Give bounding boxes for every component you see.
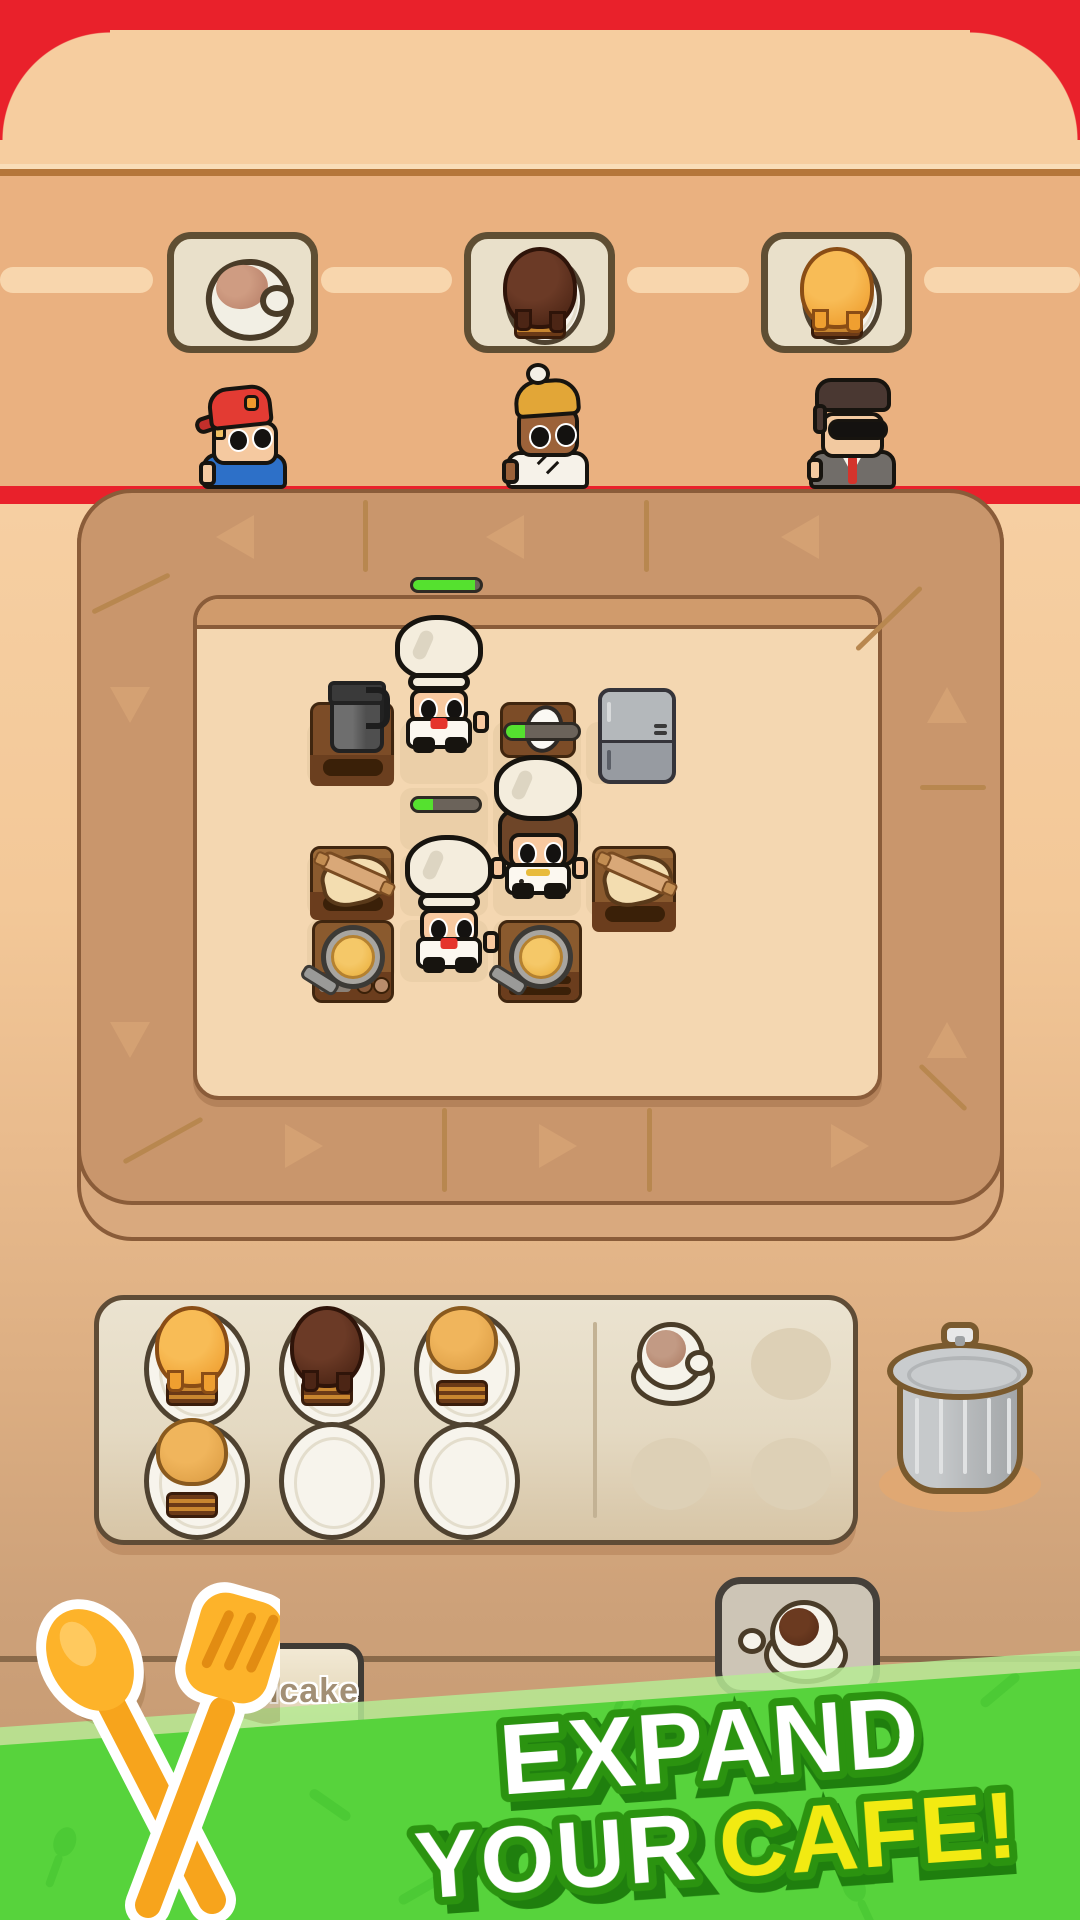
coffee-cup-icon: [198, 253, 294, 337]
expand-arrow-right-icon[interactable]: [539, 1124, 577, 1168]
fridge-handle: [654, 731, 667, 735]
customer-eye: [557, 425, 575, 445]
fridge[interactable]: [598, 688, 676, 784]
status-bar: [0, 0, 1080, 30]
expand-arrow-left-icon[interactable]: [486, 515, 524, 559]
trash-lid: [887, 1342, 1033, 1400]
progress-bar-order-middle: [410, 796, 482, 813]
order-card-coffee: [167, 232, 318, 353]
expand-arrow-left-icon[interactable]: [216, 515, 254, 559]
empty-cup-spot: [751, 1328, 831, 1400]
conveyor-stripe: [924, 267, 1080, 293]
conveyor-stripe: [627, 267, 749, 293]
customer-hand: [502, 459, 519, 484]
expand-arrow-right-icon[interactable]: [831, 1124, 869, 1168]
expand-arrow-down-icon[interactable]: [110, 687, 150, 723]
kitchen-back-wall: [197, 599, 878, 629]
yellow-collar: [526, 869, 550, 876]
progress-fill: [413, 580, 475, 590]
counter-plate[interactable]: [414, 1422, 520, 1540]
hair-side: [813, 404, 827, 434]
chocolate-pancake-icon: [294, 1306, 360, 1406]
ring-tick-mark: [920, 785, 986, 790]
empty-cup-spot: [751, 1438, 831, 1510]
red-bowtie: [441, 938, 458, 949]
ring-tick-mark: [644, 500, 649, 572]
chef-middle-female[interactable]: [492, 755, 586, 893]
red-cap: [206, 383, 274, 431]
coffee-kettle-icon: [328, 681, 382, 747]
frying-pan-icon: [509, 925, 573, 989]
screen-corner: [970, 30, 1080, 140]
red-tie: [848, 456, 857, 484]
coffee-cup[interactable]: [629, 1322, 709, 1402]
customer-hand: [807, 458, 823, 482]
wall-trim-dark: [0, 169, 1080, 176]
fridge-top-door: [602, 692, 672, 743]
honey-pancake-icon: [159, 1306, 225, 1406]
progress-bar-egg-table: [503, 722, 581, 741]
stove-middle[interactable]: [498, 920, 582, 1003]
chocolate-pancake-icon: [507, 247, 573, 339]
customer-eye: [531, 427, 549, 447]
ring-tick-mark: [647, 1108, 652, 1192]
honey-pancake-icon: [804, 247, 870, 339]
chef-top[interactable]: [393, 615, 487, 753]
dough-table-right[interactable]: [592, 846, 676, 932]
trash-lid-handle: [941, 1322, 979, 1348]
cap-patch: [244, 395, 259, 411]
customer-yellow-beanie: [500, 375, 595, 489]
pancake-cooking: [331, 935, 375, 979]
progress-fill: [413, 799, 433, 810]
screen-corner: [0, 30, 110, 140]
dough-table-left[interactable]: [310, 846, 394, 920]
conveyor-stripe: [321, 267, 452, 293]
sunglasses-icon: [831, 422, 885, 437]
progress-fill: [506, 725, 525, 738]
expand-arrow-up-icon[interactable]: [927, 687, 967, 723]
stove-left[interactable]: [312, 920, 394, 1003]
expand-arrow-left-icon[interactable]: [781, 515, 819, 559]
customer-boy-red-cap: [197, 383, 290, 489]
customer-eye: [254, 429, 271, 448]
chef-bottom[interactable]: [403, 835, 497, 973]
yellow-beanie: [513, 377, 581, 420]
fridge-handle: [654, 724, 667, 728]
counter-plate[interactable]: [279, 1422, 385, 1540]
expand-arrow-down-icon[interactable]: [110, 1022, 150, 1058]
serving-counter: [94, 1295, 858, 1545]
spoon-spatula-icon: [10, 1570, 280, 1920]
progress-bar-order-top: [410, 577, 483, 593]
expand-arrow-right-icon[interactable]: [285, 1124, 323, 1168]
trash-can[interactable]: [885, 1320, 1035, 1516]
plain-pancake-icon: [429, 1306, 495, 1406]
red-bowtie: [431, 718, 448, 729]
customer-eye: [230, 431, 247, 450]
empty-cup-spot: [631, 1438, 711, 1510]
order-card-honey-pancake: [761, 232, 912, 353]
conveyor-stripe: [0, 267, 153, 293]
pancake-cooking: [519, 935, 563, 979]
expand-arrow-up-icon[interactable]: [927, 1022, 967, 1058]
customer-hand: [199, 461, 216, 486]
fridge-handle-bar: [607, 702, 611, 722]
order-card-chocolate-pancake: [464, 232, 615, 353]
counter-divider: [593, 1322, 597, 1518]
beanie-pompom: [526, 363, 550, 385]
fridge-handle-bar: [607, 750, 611, 770]
game-screen: Pancake EXPAND EXPAND YOURCAFE! YOURCAFE…: [0, 0, 1080, 1920]
station-slot: [605, 906, 665, 922]
ring-tick-mark: [363, 500, 368, 572]
frying-pan-icon: [321, 925, 385, 989]
plain-pancake-icon: [159, 1418, 225, 1518]
ring-tick-mark: [442, 1108, 447, 1192]
customer-businessman: [805, 378, 900, 489]
coffee-machine-station[interactable]: [310, 702, 394, 786]
cafe-wall: [0, 30, 1080, 164]
station-slot: [323, 759, 383, 776]
